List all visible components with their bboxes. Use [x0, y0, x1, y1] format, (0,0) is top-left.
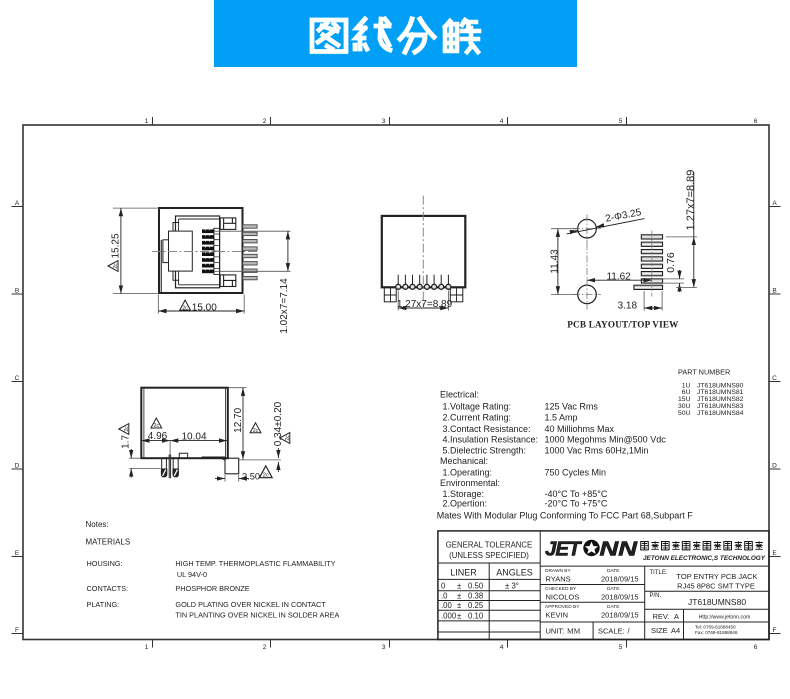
svg-text:F: F	[773, 627, 777, 634]
svg-text:LINER: LINER	[450, 568, 477, 578]
svg-text:2.Current Rating:: 2.Current Rating:	[443, 413, 512, 423]
svg-text:(UNLESS SPECIFIED): (UNLESS SPECIFIED)	[449, 551, 529, 560]
svg-text:40 Milliohms Max: 40 Milliohms Max	[545, 424, 615, 434]
svg-text:0.50: 0.50	[468, 582, 484, 591]
svg-text:P/N.: P/N.	[650, 593, 662, 599]
svg-text:MM: MM	[567, 627, 581, 636]
svg-text:Mates With Modular Plug Confor: Mates With Modular Plug Conforming To FC…	[437, 510, 693, 520]
svg-text:GENERAL TOLERANCE: GENERAL TOLERANCE	[446, 541, 533, 550]
svg-text:6: 6	[754, 644, 758, 651]
svg-text:A: A	[772, 200, 777, 207]
svg-text:1.7: 1.7	[121, 435, 132, 449]
svg-text:30U: 30U	[678, 403, 691, 410]
svg-text:Electrical:: Electrical:	[440, 390, 479, 400]
svg-text:3: 3	[382, 644, 386, 651]
svg-text:JET: JET	[545, 538, 582, 561]
svg-text:.000: .000	[441, 612, 457, 621]
svg-text:Tel: 0769-81888450: Tel: 0769-81888450	[695, 625, 736, 630]
svg-text:10.04: 10.04	[181, 431, 206, 442]
svg-text:UNIT:: UNIT:	[546, 627, 565, 636]
svg-text:PART NUMBER: PART NUMBER	[678, 368, 730, 377]
svg-text:2018/09/15: 2018/09/15	[601, 575, 639, 584]
svg-text:ANGLES: ANGLES	[496, 568, 533, 578]
svg-text:D: D	[15, 463, 20, 470]
svg-text:JETONN ELECTRONIC‚S TECHNOLOGY: JETONN ELECTRONIC‚S TECHNOLOGY	[643, 555, 766, 562]
svg-text:GOLD PLATING OVER NICKEL IN CO: GOLD PLATING OVER NICKEL IN CONTACT	[175, 600, 326, 609]
svg-text:HIGH TEMP. THERMOPLASTIC FLAMM: HIGH TEMP. THERMOPLASTIC FLAMMABILITY	[175, 559, 335, 568]
svg-text:1000 Megohms Min@500 Vdc: 1000 Megohms Min@500 Vdc	[545, 435, 667, 445]
svg-text:2.Opertion:: 2.Opertion:	[443, 499, 488, 509]
svg-text:3.Contact Resistance:: 3.Contact Resistance:	[443, 424, 531, 434]
svg-text:A4: A4	[671, 626, 680, 635]
svg-text:750 Cycles Min: 750 Cycles Min	[545, 468, 607, 478]
svg-text:125 Vac Rms: 125 Vac Rms	[545, 402, 599, 412]
svg-text:F: F	[15, 627, 19, 634]
svg-text:12.70: 12.70	[233, 407, 244, 432]
svg-text:2: 2	[263, 644, 267, 651]
svg-text:2018/09/15: 2018/09/15	[601, 593, 639, 602]
svg-text:C: C	[15, 375, 20, 382]
svg-text:CONTACTS:: CONTACTS:	[87, 584, 129, 593]
svg-text:±: ±	[457, 612, 462, 621]
svg-text:3: 3	[382, 118, 386, 125]
svg-text:5: 5	[619, 644, 623, 651]
svg-text:1000 Vac Rms 60Hz,1Min: 1000 Vac Rms 60Hz,1Min	[545, 445, 649, 455]
svg-text:2018/09/15: 2018/09/15	[601, 611, 639, 620]
svg-text:RYANS: RYANS	[546, 575, 571, 584]
svg-text:B: B	[15, 288, 19, 295]
svg-text:PCB LAYOUT/TOP VIEW: PCB LAYOUT/TOP VIEW	[567, 320, 679, 330]
svg-text:4.Insulation Resistance:: 4.Insulation Resistance:	[443, 435, 539, 445]
svg-text:TOP ENTRY PCB JACK: TOP ENTRY PCB JACK	[676, 572, 757, 581]
svg-text:0.25: 0.25	[468, 601, 484, 610]
svg-text:PLATING:: PLATING:	[87, 600, 120, 609]
svg-text:2.50: 2.50	[242, 471, 260, 481]
svg-text:HOUSING:: HOUSING:	[87, 559, 123, 568]
svg-text:1.27x7=8.89: 1.27x7=8.89	[397, 299, 453, 310]
svg-text:A: A	[674, 612, 679, 621]
svg-text:15U: 15U	[678, 396, 691, 403]
svg-text:4: 4	[500, 644, 504, 651]
svg-text:6: 6	[754, 118, 758, 125]
svg-text:JT618UMNS82: JT618UMNS82	[697, 396, 744, 403]
svg-text:C: C	[772, 375, 777, 382]
svg-text:NICOLOS: NICOLOS	[546, 593, 580, 602]
svg-text:DATE: DATE	[607, 604, 619, 610]
svg-text:.00: .00	[441, 601, 453, 610]
svg-text:A: A	[15, 200, 20, 207]
svg-text:11.43: 11.43	[550, 249, 561, 274]
svg-text:11.62: 11.62	[606, 271, 631, 282]
svg-text:1.27x7=8.89: 1.27x7=8.89	[685, 170, 697, 231]
svg-text:KEVIN: KEVIN	[546, 611, 569, 620]
svg-text:UL 94V-0: UL 94V-0	[177, 570, 207, 579]
svg-text:TITLE.: TITLE.	[650, 570, 668, 576]
svg-text:D: D	[772, 463, 777, 470]
svg-text:0.10: 0.10	[468, 612, 484, 621]
svg-text:2: 2	[263, 118, 267, 125]
svg-text:±: ±	[457, 582, 462, 591]
svg-text:B: B	[772, 288, 776, 295]
svg-text:Http://www.jetonn.com: Http://www.jetonn.com	[699, 615, 751, 621]
svg-text:APPROVED BY: APPROVED BY	[545, 604, 580, 610]
svg-text:RJ45 8P8C SMT TYPE: RJ45 8P8C SMT TYPE	[677, 582, 755, 591]
svg-text:-20°C To +75°C: -20°C To +75°C	[545, 499, 608, 509]
svg-text:JT618UMNS80: JT618UMNS80	[688, 597, 746, 607]
svg-text:.0: .0	[441, 591, 448, 600]
svg-text:3.18: 3.18	[618, 301, 638, 312]
svg-text:4: 4	[500, 118, 504, 125]
svg-text:15.00: 15.00	[192, 302, 217, 313]
svg-text:SIZE: SIZE	[651, 626, 668, 635]
svg-text:1.Voltage Rating:: 1.Voltage Rating:	[443, 402, 512, 412]
svg-text:DATE: DATE	[607, 568, 619, 574]
svg-text:Environmental:: Environmental:	[440, 478, 500, 488]
svg-text:Notes:: Notes:	[86, 520, 109, 529]
svg-text:±: ±	[457, 601, 462, 610]
svg-text:E: E	[15, 550, 20, 557]
svg-text:0.38: 0.38	[468, 591, 483, 600]
svg-text:NN: NN	[600, 538, 639, 561]
svg-text:REV.: REV.	[653, 612, 670, 621]
svg-text:5.Dielectric Strength:: 5.Dielectric Strength:	[443, 445, 527, 455]
svg-text:4.96: 4.96	[148, 431, 168, 442]
svg-text:E: E	[772, 550, 777, 557]
svg-text:Mechanical:: Mechanical:	[440, 456, 488, 466]
svg-text:DATE: DATE	[607, 586, 619, 592]
svg-text:± 3°: ± 3°	[505, 582, 519, 591]
svg-text:15.25: 15.25	[110, 233, 121, 258]
svg-text:Fax: 0769-81888946: Fax: 0769-81888946	[695, 630, 738, 635]
svg-text:CHECKED BY: CHECKED BY	[545, 586, 577, 592]
svg-text:1.Operating:: 1.Operating:	[443, 468, 493, 478]
svg-text:1.02x7=7.14: 1.02x7=7.14	[279, 278, 290, 334]
svg-text:1: 1	[145, 644, 149, 651]
svg-text:JT618UMNS84: JT618UMNS84	[697, 410, 744, 417]
svg-text:±: ±	[457, 591, 462, 600]
svg-text:0.76: 0.76	[665, 252, 677, 273]
svg-text:50U: 50U	[678, 410, 691, 417]
svg-text:SCALE:: SCALE:	[598, 627, 625, 636]
svg-text:PHOSPHOR BRONZE: PHOSPHOR BRONZE	[175, 584, 249, 593]
svg-text:DRAWN BY: DRAWN BY	[545, 568, 571, 574]
svg-text:JT618UMNS83: JT618UMNS83	[697, 403, 744, 410]
svg-text:5: 5	[619, 118, 623, 125]
svg-text:1: 1	[145, 118, 149, 125]
svg-text:1.5 Amp: 1.5 Amp	[545, 413, 578, 423]
svg-text:TIN PLANTING OVER NICKEL IN SO: TIN PLANTING OVER NICKEL IN SOLDER AREA	[175, 611, 339, 620]
svg-text:0: 0	[441, 582, 446, 591]
svg-text:MATERIALS: MATERIALS	[86, 538, 131, 547]
